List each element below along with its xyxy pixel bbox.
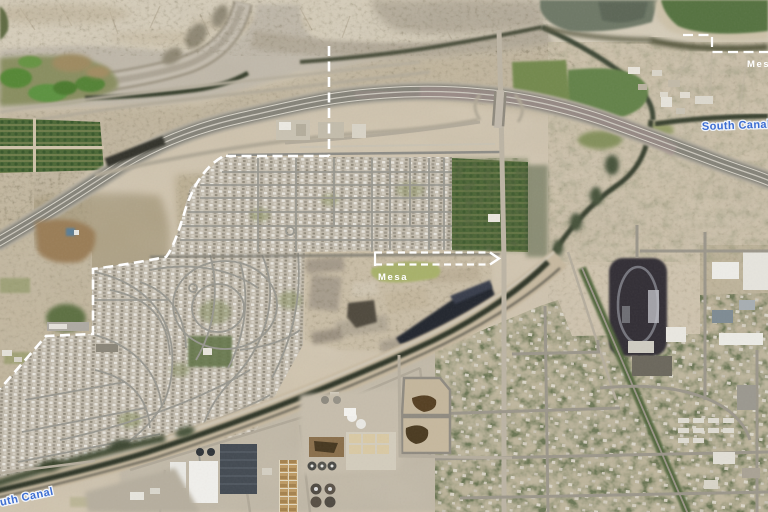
svg-text:Mesa: Mesa [378,272,408,283]
svg-text:South Canal: South Canal [702,119,768,133]
svg-text:Mesa: Mesa [747,59,768,70]
